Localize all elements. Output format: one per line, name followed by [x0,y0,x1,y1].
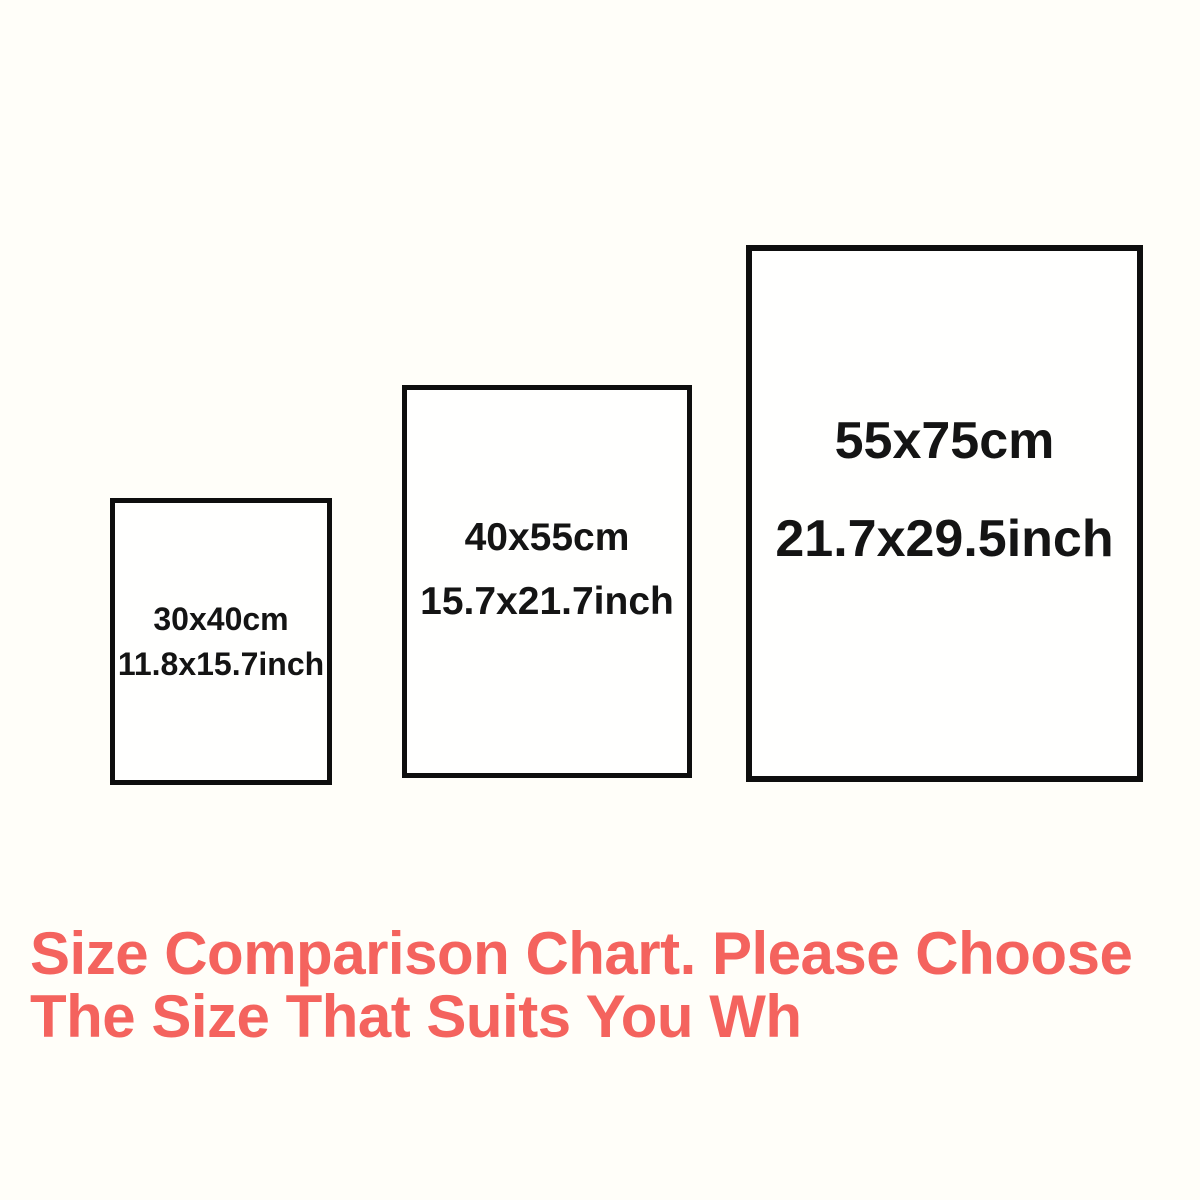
size-inch-label-40x55: 15.7x21.7inch [420,580,674,624]
size-box-40x55cm: 40x55cm 15.7x21.7inch [402,385,692,778]
size-cm-label-55x75: 55x75cm [835,412,1055,470]
caption-line-1: Size Comparison Chart. Please Choose [30,922,1132,985]
size-box-30x40cm: 30x40cm 11.8x15.7inch [110,498,332,785]
caption-line-2: The Size That Suits You Wh [30,985,1132,1048]
size-inch-label-55x75: 21.7x29.5inch [775,510,1113,568]
size-box-55x75cm: 55x75cm 21.7x29.5inch [746,245,1143,782]
size-comparison-chart: 30x40cm 11.8x15.7inch 40x55cm 15.7x21.7i… [0,0,1200,1200]
size-inch-label-30x40: 11.8x15.7inch [118,646,324,682]
caption: Size Comparison Chart. Please Choose The… [30,922,1132,1048]
size-cm-label-40x55: 40x55cm [465,516,630,560]
size-cm-label-30x40: 30x40cm [153,601,288,637]
